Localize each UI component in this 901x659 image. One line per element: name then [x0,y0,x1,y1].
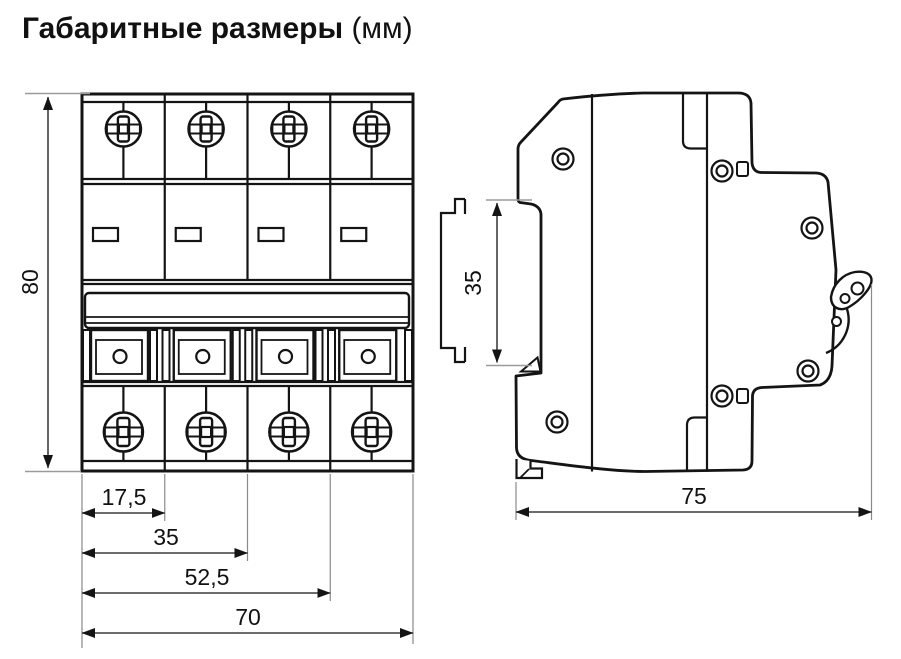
rivet-icon [798,361,819,382]
handle-tie-bar [85,293,409,328]
rivet-icon [712,161,733,182]
screw-terminal-icon [269,413,308,452]
toggle-handle-icon [257,330,314,381]
dim-label-width-2: 35 [153,524,179,550]
dim-label-width-4: 70 [235,604,261,630]
rivet-icon [712,386,733,407]
dim-label-depth: 75 [681,483,707,509]
toggle-handle-icon [339,330,396,381]
front-view-drawing: 80 17,5 35 52,5 70 [17,94,413,649]
screw-terminal-icon [354,112,389,147]
technical-drawing: 80 17,5 35 52,5 70 [0,0,901,659]
rivet-icon [802,218,823,239]
dim-label-height: 80 [17,269,43,295]
dimensions-figure: { "title": { "main": "Габаритные размеры… [0,0,901,659]
dim-height: 80 [17,94,90,472]
dim-rail-height: 35 [460,200,532,366]
screw-terminal-icon [104,413,143,452]
screw-terminal-icon [187,413,226,452]
screw-terminal-icon [189,112,224,147]
screw-terminal-icon [106,112,141,147]
side-view-drawing: 35 75 [441,93,872,520]
toggle-handle-icon [91,330,148,381]
rivet-icon [547,412,568,433]
dim-widths: 17,5 35 52,5 70 [82,474,413,648]
rail-latch [521,358,541,372]
toggle-handle-icon [174,330,231,381]
dim-label-rail: 35 [460,270,486,296]
dim-label-width-1: 17,5 [102,484,147,510]
screw-terminal-icon [352,413,391,452]
pole-handles [83,330,412,381]
dim-label-width-3: 52,5 [185,564,230,590]
screw-terminal-icon [271,112,306,147]
rivet-icon [553,149,574,170]
